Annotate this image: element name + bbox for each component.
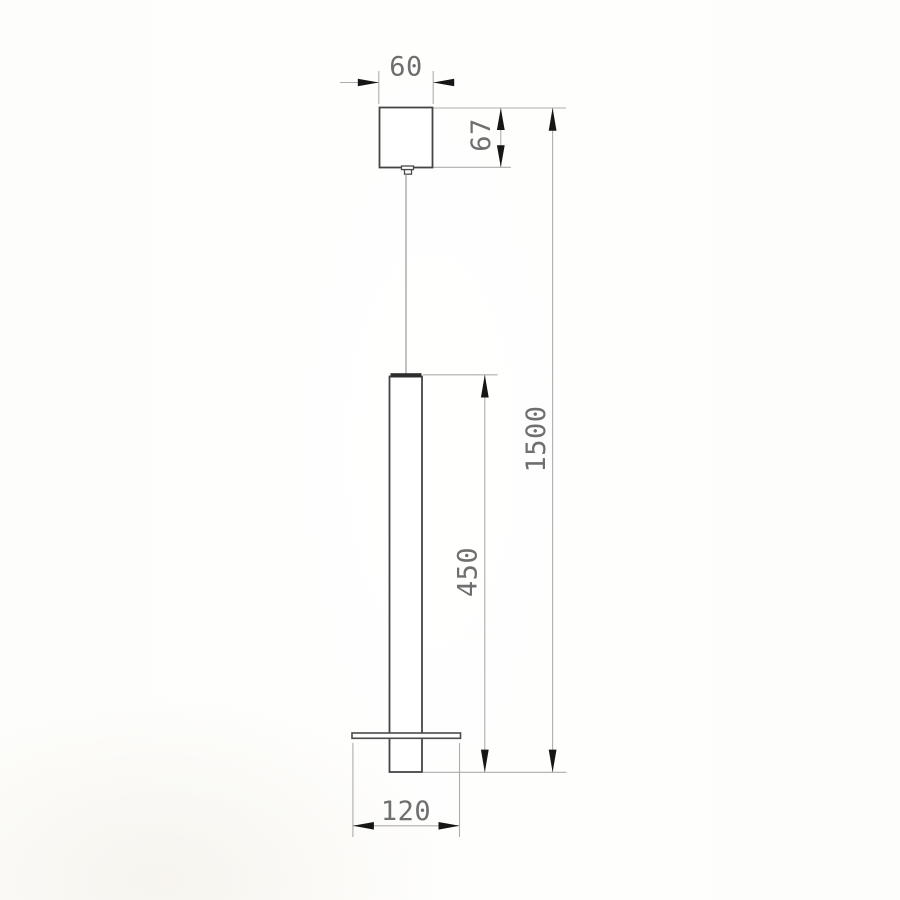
arrowhead-right-icon <box>358 79 379 87</box>
arrowhead-right-icon <box>439 822 460 830</box>
dimension-label: 120 <box>381 796 431 827</box>
base-plate-disc <box>352 733 461 738</box>
dimension-label: 450 <box>453 547 484 597</box>
arrowhead-up-icon <box>549 108 557 131</box>
tube-body <box>390 377 423 773</box>
pendant-lamp-dimension-drawing: 60 67 450 1500 <box>0 0 900 900</box>
arrowhead-down-icon <box>481 750 489 773</box>
drawing-sheet: 60 67 450 1500 <box>0 0 900 900</box>
lamp-object <box>352 108 461 773</box>
dimension-label: 60 <box>389 52 423 83</box>
arrowhead-up-icon <box>497 108 505 130</box>
arrowhead-left-icon <box>353 822 374 830</box>
arrowhead-up-icon <box>481 375 489 398</box>
dimension-canopy-width: 60 <box>340 52 455 105</box>
dimension-label: 1500 <box>521 405 552 472</box>
dimension-canopy-height: 67 <box>434 108 567 167</box>
dimension-label: 67 <box>466 118 497 152</box>
dimension-overall-drop: 1500 <box>423 108 567 772</box>
canopy-nipple-stem <box>405 170 412 175</box>
arrowhead-left-icon <box>433 79 454 87</box>
canopy-outline <box>380 108 433 168</box>
dimension-tube-length: 450 <box>423 375 498 773</box>
tube-top-cap <box>391 373 422 377</box>
arrowhead-down-icon <box>549 750 557 773</box>
arrowhead-down-icon <box>497 145 505 167</box>
